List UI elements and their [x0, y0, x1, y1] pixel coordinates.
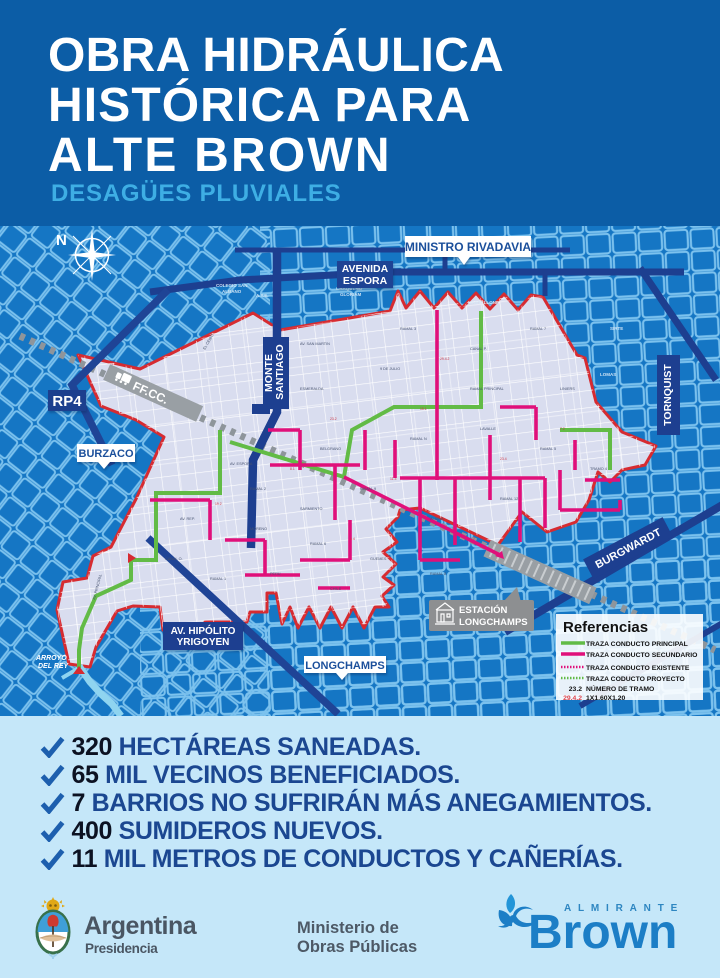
svg-text:N: N: [56, 232, 67, 249]
svg-text:MINISTRO RIVADAVIA: MINISTRO RIVADAVIA: [405, 240, 532, 254]
svg-text:23.2: 23.2: [330, 417, 337, 421]
svg-text:AVENIDA: AVENIDA: [342, 263, 389, 275]
svg-text:ALSINA: ALSINA: [430, 517, 444, 521]
svg-text:ARROYO: ARROYO: [35, 655, 67, 662]
svg-text:19.2: 19.2: [215, 502, 222, 506]
svg-text:RAMAL 12: RAMAL 12: [500, 497, 518, 501]
svg-text:A.Y.E.: A.Y.E.: [256, 293, 269, 298]
svg-text:RAMAL 8: RAMAL 8: [430, 572, 446, 576]
svg-text:AV. SAN MARTIN: AV. SAN MARTIN: [300, 342, 330, 346]
svg-text:23.2: 23.2: [569, 686, 582, 693]
svg-text:RAMAL 2: RAMAL 2: [250, 487, 266, 491]
svg-text:GLORIAM: GLORIAM: [340, 292, 361, 297]
svg-text:CANAL P.: CANAL P.: [470, 347, 487, 351]
svg-text:CANAL O.: CANAL O.: [165, 557, 183, 561]
svg-text:TRAZA CONDUCTO SECUNDARIO: TRAZA CONDUCTO SECUNDARIO: [586, 652, 697, 659]
svg-text:RAMAL 6: RAMAL 6: [310, 542, 326, 546]
svg-text:YRIGOYEN: YRIGOYEN: [177, 637, 230, 648]
svg-text:SARMIENTO: SARMIENTO: [300, 507, 323, 511]
svg-text:RAMAL 9: RAMAL 9: [360, 487, 376, 491]
svg-text:23.4: 23.4: [500, 457, 507, 461]
svg-text:29.4.2: 29.4.2: [440, 357, 450, 361]
svg-text:RAMAL N: RAMAL N: [410, 437, 427, 441]
svg-text:LONGCHAMPS: LONGCHAMPS: [305, 660, 384, 672]
svg-text:6.4: 6.4: [350, 537, 355, 541]
svg-text:RAMAL 7: RAMAL 7: [530, 327, 546, 331]
svg-text:ESPORA: ESPORA: [343, 275, 388, 287]
svg-text:AV. REP.: AV. REP.: [180, 517, 195, 521]
svg-text:ALBANO: ALBANO: [222, 289, 242, 294]
svg-text:1X1.60X1.20: 1X1.60X1.20: [586, 695, 626, 702]
svg-text:NÚMERO DE TRAMO: NÚMERO DE TRAMO: [586, 684, 654, 693]
svg-text:TORNQUIST: TORNQUIST: [662, 364, 674, 426]
svg-text:BURZACO: BURZACO: [79, 448, 134, 460]
svg-text:RAMAL 5: RAMAL 5: [540, 447, 556, 451]
svg-text:ESMERALDA: ESMERALDA: [300, 387, 324, 391]
svg-text:7.2: 7.2: [560, 427, 565, 431]
svg-text:LINIERS: LINIERS: [560, 387, 575, 391]
svg-text:COLEGIO SAN: COLEGIO SAN: [216, 283, 248, 288]
svg-text:29.4.2: 29.4.2: [563, 695, 582, 702]
svg-text:15.1: 15.1: [420, 407, 427, 411]
svg-text:TRAMO 4: TRAMO 4: [590, 467, 607, 471]
svg-text:SIRTE: SIRTE: [610, 326, 623, 331]
svg-text:RP4: RP4: [52, 393, 82, 410]
svg-text:DEL REY: DEL REY: [38, 663, 70, 670]
svg-text:LOMAS: LOMAS: [600, 372, 616, 377]
svg-text:Referencias: Referencias: [563, 619, 648, 636]
svg-text:BELGRANO: BELGRANO: [320, 447, 341, 451]
svg-text:GUEMES: GUEMES: [370, 557, 387, 561]
svg-text:SANTIAGO: SANTIAGO: [274, 344, 286, 399]
svg-text:CHILE: CHILE: [330, 587, 342, 591]
svg-text:RAMAL 3: RAMAL 3: [400, 327, 416, 331]
svg-text:MASTELLONE: MASTELLONE: [468, 300, 499, 305]
svg-text:RAMAL PRINCIPAL: RAMAL PRINCIPAL: [470, 387, 504, 391]
svg-text:11.3: 11.3: [390, 477, 396, 481]
svg-text:LAVALLE: LAVALLE: [480, 427, 496, 431]
svg-text:TRAZA CONDUCTO EXISTENTE: TRAZA CONDUCTO EXISTENTE: [586, 665, 690, 672]
svg-text:8.1: 8.1: [290, 467, 295, 471]
svg-text:AV. HIPÓLITO: AV. HIPÓLITO: [171, 624, 236, 637]
svg-text:MORENO: MORENO: [250, 527, 267, 531]
svg-text:9 DE JULIO: 9 DE JULIO: [380, 367, 400, 371]
svg-text:PERU: PERU: [270, 572, 281, 576]
svg-text:AV. ESPORA: AV. ESPORA: [230, 462, 253, 466]
svg-text:ESTACIÓN: ESTACIÓN: [459, 604, 508, 616]
svg-text:TRAZA CONDUCTO PRINCIPAL: TRAZA CONDUCTO PRINCIPAL: [586, 641, 688, 648]
svg-text:3.2: 3.2: [470, 537, 475, 541]
svg-text:LONGCHAMPS: LONGCHAMPS: [459, 617, 528, 628]
svg-text:TRAZA CODUCTO PROYECTO: TRAZA CODUCTO PROYECTO: [586, 676, 685, 683]
svg-text:RAMAL 1: RAMAL 1: [210, 577, 226, 581]
